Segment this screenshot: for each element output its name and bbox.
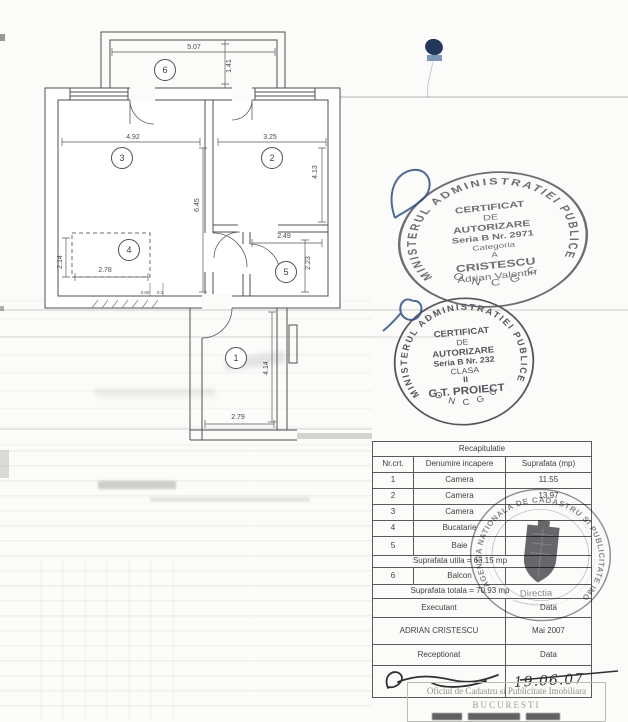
table-row: 1 Camera 11.55 bbox=[373, 473, 592, 489]
table-row: 6 Balcon bbox=[373, 568, 592, 585]
table-header-row: Nr.crt. Denumire incapere Suprafata (mp) bbox=[373, 457, 592, 473]
dim-kitchen-height: 2.14 bbox=[57, 255, 64, 269]
room-label-6: 6 bbox=[162, 65, 167, 75]
col-header-suprafata: Suprafata (mp) bbox=[506, 457, 592, 473]
dim-balcony-depth: 1.41 bbox=[226, 59, 233, 73]
dim-hall-width: 2.79 bbox=[231, 414, 245, 421]
dim-room2-height: 4.13 bbox=[312, 165, 319, 179]
cell-area: 11.55 bbox=[506, 473, 592, 489]
dim-room2-width: 3.25 bbox=[263, 134, 277, 141]
table-row: 2 Camera 13.97 bbox=[373, 489, 592, 505]
dim-hall-height: 4.14 bbox=[263, 361, 270, 375]
room-label-5: 5 bbox=[283, 267, 288, 277]
floor-plan: 5.07 1.41 4.92 3.25 4.13 6.45 2.49 2.23 … bbox=[0, 0, 628, 460]
dim-kitchen-width: 2.78 bbox=[98, 267, 112, 274]
executant-row: ADRIAN CRISTESCU Mai 2007 bbox=[373, 618, 592, 645]
cell-name: Camera bbox=[414, 473, 506, 489]
col-header-nr: Nr.crt. bbox=[373, 457, 414, 473]
recap-table: Recapitulatie Nr.crt. Denumire incapere … bbox=[372, 441, 592, 698]
executant-header-row: Executant Data bbox=[373, 599, 592, 618]
cell-name: Baie bbox=[414, 537, 506, 556]
room-label-2: 2 bbox=[269, 153, 274, 163]
scanned-cadastral-document: { "plan": { "rooms": {"r1":"1","r2":"2",… bbox=[0, 0, 628, 720]
scan-noise bbox=[0, 450, 372, 712]
cell-nr: 1 bbox=[373, 473, 414, 489]
cell-name: Camera bbox=[414, 505, 506, 521]
cropped-text-fragment bbox=[432, 713, 462, 720]
scan-smudge bbox=[98, 481, 176, 489]
cell-area: 13.97 bbox=[506, 489, 592, 505]
table-title: Recapitulatie bbox=[373, 442, 592, 457]
room-label-1: 1 bbox=[233, 353, 238, 363]
cell-nr: 4 bbox=[373, 521, 414, 537]
col-header-denumire: Denumire incapere bbox=[414, 457, 506, 473]
room-label-3: 3 bbox=[119, 153, 124, 163]
cropped-text-fragment bbox=[468, 713, 520, 720]
table-row: 3 Camera bbox=[373, 505, 592, 521]
data-label: Data bbox=[506, 599, 592, 618]
dim-tiny-a: 0.60 bbox=[141, 290, 150, 295]
room-label-4: 4 bbox=[126, 245, 131, 255]
executant-name: ADRIAN CRISTESCU bbox=[373, 618, 506, 645]
walls bbox=[45, 32, 340, 440]
cell-nr: 3 bbox=[373, 505, 414, 521]
dim-bath-height: 2.23 bbox=[305, 256, 312, 270]
suprafata-totala-row: Suprafata totala = 70.93 mp bbox=[373, 585, 592, 599]
table-row: 5 Baie bbox=[373, 537, 592, 556]
dim-room3-width: 4.92 bbox=[126, 134, 140, 141]
cell-nr: 6 bbox=[373, 568, 414, 585]
table-title-row: Recapitulatie bbox=[373, 442, 592, 457]
scan-noise bbox=[40, 560, 180, 720]
cell-nr: 5 bbox=[373, 537, 414, 556]
cell-nr: 2 bbox=[373, 489, 414, 505]
scan-smudge bbox=[150, 497, 310, 502]
cropped-text-fragment bbox=[526, 713, 560, 720]
cell-area bbox=[506, 505, 592, 521]
suprafata-utila-row: Suprafata utila = 63.15 mp bbox=[373, 556, 592, 568]
footer-office-line: Oficiul de Cadastru si Publicitate Imobi… bbox=[408, 686, 605, 696]
executant-date: Mai 2007 bbox=[506, 618, 592, 645]
suprafata-totala: Suprafata totala = 70.93 mp bbox=[373, 585, 592, 599]
cell-area bbox=[506, 521, 592, 537]
dim-tiny-b: 0.2 bbox=[157, 290, 164, 295]
cell-area bbox=[506, 568, 592, 585]
table-row: 4 Bucatarie bbox=[373, 521, 592, 537]
executant-label: Executant bbox=[373, 599, 506, 618]
suprafata-utila: Suprafata utila = 63.15 mp bbox=[373, 556, 592, 568]
receptionat-header-row: Receptionat Data bbox=[373, 645, 592, 666]
dim-balcony-width: 5.07 bbox=[187, 44, 201, 51]
dim-room3-height: 6.45 bbox=[194, 198, 201, 212]
cell-name: Balcon bbox=[414, 568, 506, 585]
data-label: Data bbox=[506, 645, 592, 666]
footer-city-line: BUCURESTI bbox=[408, 700, 605, 710]
receptionat-label: Receptionat bbox=[373, 645, 506, 666]
cell-name: Camera bbox=[414, 489, 506, 505]
cell-name: Bucatarie bbox=[414, 521, 506, 537]
dim-bath-width: 2.49 bbox=[277, 233, 291, 240]
cell-area bbox=[506, 537, 592, 556]
